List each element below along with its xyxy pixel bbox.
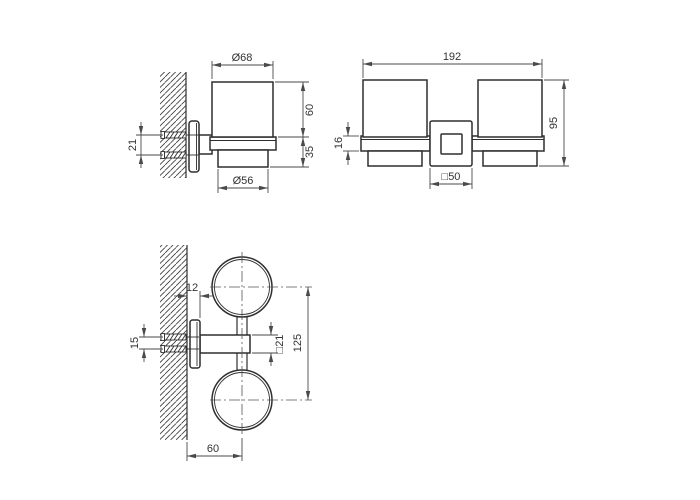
mounting-plate <box>189 121 199 172</box>
tumbler-cup-bottom-right <box>483 151 537 166</box>
dim-overall-height: 95 <box>548 117 560 129</box>
holder-ring <box>210 137 276 150</box>
wall-hatch <box>160 72 186 178</box>
tumbler-cup-right <box>478 80 542 137</box>
front-view: 192 95 16 □50 <box>333 51 569 189</box>
tumbler-cup <box>212 82 273 137</box>
plan-view: 12 15 □21 125 60 <box>129 245 312 461</box>
dim-cup-bottom-diameter: Ø56 <box>233 175 254 187</box>
tumbler-cup-bottom-left <box>368 151 422 166</box>
dim-wall-to-cup-center: 60 <box>207 443 219 455</box>
dim-cup-height: 60 <box>304 104 316 116</box>
dim-ring-height: 16 <box>333 137 345 149</box>
dim-screw-spacing: 15 <box>129 337 141 349</box>
dim-overall-width: 192 <box>443 51 461 63</box>
dim-cup-center-distance: 125 <box>292 334 304 352</box>
tumbler-cup-bottom <box>218 150 268 167</box>
dim-cup-top-diameter: Ø68 <box>232 52 253 64</box>
mounting-plate <box>190 320 200 368</box>
bracket-boss <box>441 134 462 154</box>
dim-plate-thickness: 12 <box>186 282 198 294</box>
tumbler-cup-left <box>363 80 427 137</box>
dim-holder-height: 35 <box>304 146 316 158</box>
dim-bar-section: □21 <box>274 335 286 354</box>
drawing-svg: Ø68 60 35 Ø56 21 <box>0 0 700 500</box>
side-view: Ø68 60 35 Ø56 21 <box>127 52 316 193</box>
dim-bracket-size: □50 <box>442 171 461 183</box>
holder-ring-right <box>472 136 544 151</box>
wall-hatch <box>160 245 187 440</box>
holder-ring-left <box>361 136 430 151</box>
dim-screw-spacing: 21 <box>127 139 139 151</box>
technical-drawing-canvas: Ø68 60 35 Ø56 21 <box>0 0 700 500</box>
mount-bar <box>200 335 250 353</box>
